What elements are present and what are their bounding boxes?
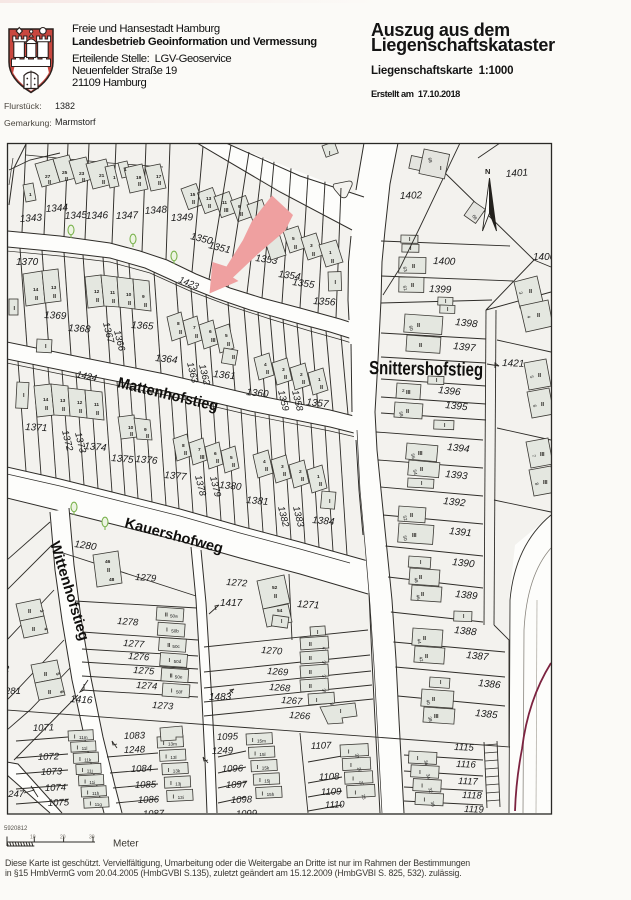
svg-text:2: 2 [402,388,405,393]
svg-text:Meter: Meter [113,839,139,850]
svg-text:III: III [224,208,229,214]
svg-text:II: II [195,334,199,340]
svg-text:1085: 1085 [135,779,157,791]
svg-text:1117: 1117 [458,776,479,788]
svg-text:III: III [211,338,216,344]
svg-text:1073: 1073 [41,766,63,778]
svg-text:11k: 11k [84,757,92,762]
svg-text:1370: 1370 [16,257,39,268]
svg-text:II: II [53,294,57,300]
svg-text:12: 12 [94,289,100,295]
svg-text:III: III [412,533,417,539]
svg-text:13k: 13k [173,768,181,773]
svg-text:1361: 1361 [213,369,236,382]
svg-text:11: 11 [94,402,99,408]
svg-text:1278: 1278 [117,616,140,628]
svg-text:II: II [130,432,134,438]
svg-text:30: 30 [89,835,95,841]
svg-text:1384: 1384 [312,515,336,528]
svg-text:II: II [107,568,111,574]
svg-text:20: 20 [60,835,66,841]
svg-text:1269: 1269 [267,666,290,678]
svg-text:1347: 1347 [116,210,139,222]
svg-text:1268: 1268 [269,682,292,694]
svg-text:1115: 1115 [454,742,475,754]
svg-text:50d: 50d [174,659,182,664]
svg-text:II: II [232,463,236,469]
svg-text:1075: 1075 [48,797,70,809]
svg-text:5: 5 [230,455,233,461]
svg-text:1084: 1084 [131,763,153,775]
svg-text:II: II [410,513,414,519]
svg-text:5: 5 [292,236,295,242]
svg-text:II: II [240,212,244,218]
svg-text:II: II [32,627,36,633]
svg-text:1116: 1116 [456,759,477,771]
svg-text:6: 6 [209,329,212,335]
svg-text:II: II [538,373,542,379]
svg-text:1375: 1375 [111,453,135,466]
svg-text:1071: 1071 [33,722,55,734]
svg-text:46: 46 [105,559,111,565]
svg-text:2: 2 [299,469,302,475]
svg-text:1: 1 [29,192,32,198]
svg-text:50c: 50c [172,644,180,649]
svg-text:2: 2 [300,372,303,378]
svg-text:II: II [419,343,423,349]
svg-text:7: 7 [198,447,201,453]
svg-text:III: III [406,390,411,396]
svg-text:48: 48 [109,577,115,583]
svg-text:II: II [44,672,48,678]
svg-text:2: 2 [3,664,10,675]
svg-text:1381: 1381 [246,495,269,508]
svg-text:4: 4 [263,459,266,465]
svg-text:1270: 1270 [261,645,284,657]
svg-text:3: 3 [282,367,285,373]
svg-text:II: II [331,259,335,265]
svg-text:III: III [434,714,439,720]
svg-text:12: 12 [77,400,83,406]
svg-text:19: 19 [136,175,142,181]
svg-text:II: II [65,177,69,183]
svg-text:II: II [138,182,142,188]
svg-text:11h: 11h [92,791,100,796]
svg-text:II: II [82,178,86,184]
svg-text:1267: 1267 [281,695,304,707]
svg-text:11: 11 [222,200,227,206]
svg-text:II: II [432,697,436,703]
svg-text:II: II [301,477,305,483]
svg-text:II: II [102,180,106,186]
svg-text:1109: 1109 [321,786,343,798]
svg-text:1074: 1074 [45,782,67,794]
svg-text:N: N [485,167,490,176]
svg-text:1097: 1097 [226,779,248,791]
svg-text:13: 13 [206,196,212,202]
svg-text:II: II [320,385,324,391]
svg-text:1417: 1417 [220,598,243,609]
svg-text:54: 54 [277,608,283,614]
svg-text:II: II [294,245,298,251]
svg-text:II: II [128,301,132,307]
svg-text:II: II [319,482,323,488]
svg-text:15j: 15j [264,779,270,784]
svg-text:1348: 1348 [144,204,167,217]
svg-text:1377: 1377 [164,470,188,483]
svg-text:10: 10 [30,835,36,841]
svg-text:II: II [146,434,150,440]
svg-text:II: II [284,375,288,381]
svg-text:1277: 1277 [123,638,146,650]
svg-text:1086: 1086 [138,794,160,806]
svg-text:23: 23 [79,171,85,177]
svg-text:II: II [48,180,52,186]
svg-text:II: II [112,299,116,305]
svg-text:1: 1 [329,250,332,256]
svg-text:15: 15 [190,192,196,198]
svg-text:17: 17 [156,174,162,180]
svg-text:1272: 1272 [226,577,249,589]
svg-text:15l: 15l [259,752,265,757]
svg-text:13j: 13j [175,782,181,787]
svg-text:1376: 1376 [135,454,159,467]
svg-text:1095: 1095 [217,731,239,743]
svg-text:1107: 1107 [311,740,333,752]
svg-text:13: 13 [60,398,66,404]
svg-text:1274: 1274 [136,680,158,692]
svg-text:15m: 15m [257,739,266,744]
svg-text:9: 9 [144,427,147,433]
svg-text:1279: 1279 [135,572,158,584]
svg-text:II: II [62,407,66,413]
svg-text:1368: 1368 [68,323,91,336]
svg-text:3: 3 [310,243,313,249]
svg-text:1275: 1275 [133,665,156,677]
svg-text:II: II [35,296,39,302]
svg-text:1371: 1371 [25,422,48,434]
svg-text:1266: 1266 [289,710,312,722]
svg-text:II: II [274,594,278,600]
svg-text:1: 1 [318,377,321,383]
svg-text:1406: 1406 [533,252,556,263]
svg-text:II: II [312,252,316,258]
svg-text:1108: 1108 [319,771,341,783]
svg-text:1399: 1399 [429,284,452,296]
svg-text:281: 281 [4,686,21,697]
svg-text:II: II [266,370,270,376]
svg-text:52: 52 [272,585,278,591]
svg-text:1273: 1273 [152,700,175,712]
svg-text:14: 14 [33,287,39,293]
svg-text:1: 1 [113,175,116,181]
svg-text:1345: 1345 [65,210,88,222]
svg-text:11i: 11i [89,780,95,785]
svg-text:II: II [45,406,49,412]
svg-text:11g: 11g [95,802,103,807]
svg-text:1098: 1098 [231,794,253,806]
svg-text:1247: 1247 [3,789,25,800]
svg-text:1391: 1391 [449,526,472,539]
svg-text:II: II [192,200,196,206]
svg-text:II: II [425,654,429,660]
svg-text:1356: 1356 [313,296,336,309]
svg-text:II: II [541,402,545,408]
svg-text:1271: 1271 [297,599,320,612]
svg-text:25: 25 [62,170,68,176]
svg-text:1401: 1401 [505,167,528,180]
svg-text:13m: 13m [168,742,177,747]
svg-text:II: II [48,690,52,696]
svg-text:13: 13 [51,285,57,291]
svg-text:50e: 50e [175,674,183,679]
svg-text:1416: 1416 [70,694,93,707]
svg-text:7: 7 [193,325,196,331]
svg-text:II: II [184,451,188,457]
svg-text:II: II [28,609,32,615]
svg-text:II: II [232,355,236,361]
svg-text:1343: 1343 [19,212,42,225]
svg-text:1110: 1110 [325,799,346,811]
svg-text:II: II [96,411,100,417]
svg-text:II: II [208,204,212,210]
svg-text:15h: 15h [267,792,275,797]
svg-text:III: III [540,452,545,458]
svg-text:1: 1 [317,474,320,480]
svg-text:1118: 1118 [462,790,483,802]
svg-text:1369: 1369 [44,310,67,322]
svg-text:13i: 13i [178,795,184,800]
svg-text:1072: 1072 [38,751,60,763]
svg-text:1096: 1096 [222,763,244,775]
svg-text:6: 6 [214,451,217,457]
svg-text:II: II [406,409,410,415]
svg-text:5920812: 5920812 [4,826,28,832]
svg-text:50a: 50a [170,614,178,619]
svg-text:13l: 13l [170,755,176,760]
svg-text:II: II [265,467,269,473]
svg-text:50f: 50f [176,690,183,695]
svg-text:4: 4 [264,362,267,368]
svg-text:II: II [96,298,100,304]
svg-text:1374: 1374 [84,441,108,454]
svg-text:II: II [302,380,306,386]
svg-text:II: II [423,636,427,642]
svg-text:1349: 1349 [171,212,194,224]
svg-text:1: 1 [124,167,127,173]
svg-text:15k: 15k [262,765,270,770]
svg-text:III: III [418,451,423,457]
svg-text:8: 8 [182,443,185,449]
svg-text:II: II [79,409,83,415]
svg-text:1365: 1365 [131,320,154,333]
svg-text:1346: 1346 [86,210,109,222]
svg-text:11m: 11m [79,735,88,740]
svg-text:II: II [144,303,148,309]
svg-text:1400: 1400 [433,256,456,268]
svg-text:II: II [537,313,541,319]
svg-text:3: 3 [281,464,284,470]
svg-text:8: 8 [177,321,180,327]
svg-text:II: II [283,472,287,478]
svg-text:21: 21 [99,173,105,179]
svg-text:10: 10 [126,292,132,298]
svg-text:11j: 11j [87,769,93,774]
svg-text:III: III [200,455,205,461]
svg-text:1380: 1380 [219,480,243,493]
svg-text:II: II [227,342,231,348]
svg-text:III: III [543,480,548,486]
svg-text:1249: 1249 [212,745,234,757]
svg-text:II: II [411,283,415,289]
svg-text:II: II [529,289,533,295]
svg-text:10: 10 [128,425,134,431]
svg-text:Snittershofstieg: Snittershofstieg [369,358,483,381]
svg-text:II: II [216,459,220,465]
svg-text:II: II [417,323,421,329]
svg-text:1276: 1276 [128,651,151,663]
svg-text:1248: 1248 [124,744,146,756]
svg-text:14: 14 [43,397,49,403]
svg-text:II: II [179,330,183,336]
svg-text:5: 5 [225,333,228,339]
svg-text:1402: 1402 [400,190,423,202]
svg-text:1421: 1421 [502,358,525,370]
svg-text:1083: 1083 [124,730,146,742]
svg-text:II: II [158,181,162,187]
svg-text:50b: 50b [171,629,179,634]
svg-text:11l: 11l [82,746,88,751]
svg-text:9: 9 [142,294,145,300]
svg-text:11: 11 [110,290,115,296]
svg-text:II: II [420,467,424,473]
svg-text:II: II [412,264,416,270]
